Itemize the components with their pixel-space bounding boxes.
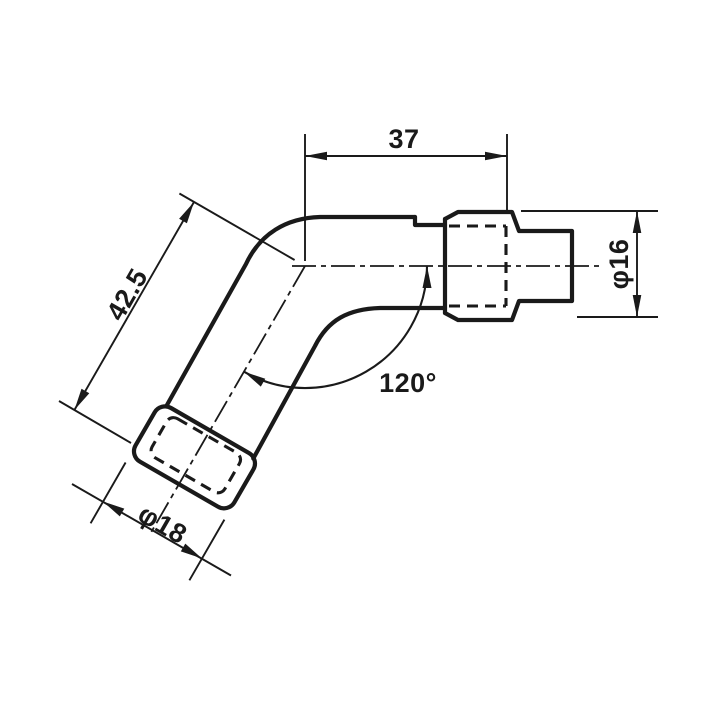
drawing-background — [0, 0, 720, 720]
drawing-page: 37 42.5 φ16 φ18 120° — [0, 0, 720, 720]
elbow-angle-label: 120° — [379, 368, 437, 398]
top-width-label: 37 — [388, 124, 419, 154]
technical-drawing: 37 42.5 φ16 φ18 120° — [0, 0, 720, 720]
terminal-diameter-label: φ16 — [604, 239, 634, 290]
